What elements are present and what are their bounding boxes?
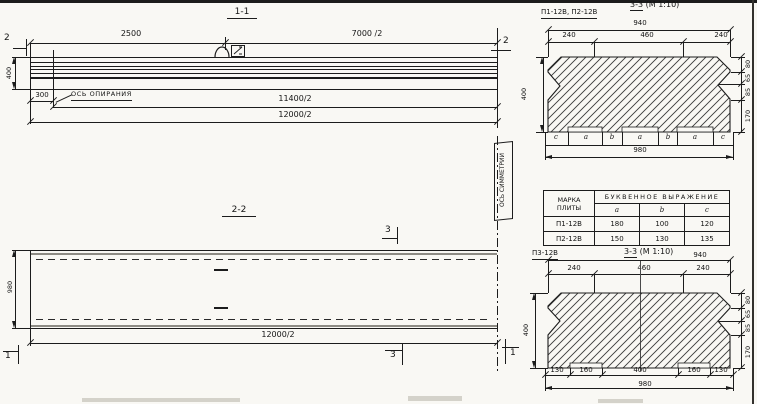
tick-mark bbox=[677, 132, 678, 145]
cell-mark: П1-12В bbox=[544, 217, 595, 232]
cut-mark-line bbox=[491, 50, 511, 51]
title-cut: 3-3 bbox=[630, 0, 643, 11]
extension-line bbox=[730, 30, 731, 57]
dim-line bbox=[30, 43, 497, 44]
bearing-axis-label: ОСЬ ОПИРАНИЯ bbox=[71, 90, 132, 101]
dim-line bbox=[15, 250, 16, 329]
symmetry-axis-label: ОСЬ СИММЕТРИИ bbox=[498, 138, 508, 222]
cut-mark-line bbox=[26, 39, 27, 56]
dim-line bbox=[741, 293, 742, 368]
dim-300: 300 bbox=[30, 91, 54, 100]
dim-85: 85 bbox=[743, 79, 753, 105]
dim-400: 400 bbox=[521, 317, 531, 343]
lifting-loop bbox=[211, 41, 247, 59]
tick-mark bbox=[733, 132, 734, 145]
dim-130: 130 bbox=[545, 366, 569, 375]
title-scale: (М 1:10) bbox=[646, 0, 680, 9]
cut-mark-2-left: 2 bbox=[4, 34, 10, 43]
scan-smudge bbox=[598, 399, 643, 403]
dim-400: 400 bbox=[4, 60, 14, 86]
slab-line bbox=[30, 69, 497, 70]
dim-2500: 2500 bbox=[111, 29, 151, 38]
arrow-up bbox=[540, 57, 544, 64]
dim-170: 170 bbox=[743, 339, 753, 365]
dim-400: 400 bbox=[519, 81, 529, 107]
cut-mark-1-right: 1 bbox=[510, 349, 516, 358]
letter-b: b bbox=[659, 133, 677, 142]
arrow-right bbox=[726, 386, 733, 390]
plan-edge bbox=[30, 253, 497, 255]
tick-mark bbox=[568, 132, 569, 145]
dim-460: 460 bbox=[624, 264, 664, 273]
arrow-left bbox=[545, 386, 552, 390]
section-3-3-title: 3-3 (М 1:10) bbox=[624, 247, 673, 256]
table-col-b: b bbox=[640, 204, 685, 217]
letter-a: a bbox=[631, 133, 649, 142]
cell-b: 130 bbox=[640, 232, 685, 246]
plan-edge bbox=[30, 250, 497, 251]
dim-line bbox=[545, 157, 733, 158]
dim-line bbox=[548, 260, 730, 261]
letter-c: c bbox=[714, 133, 732, 142]
dim-240: 240 bbox=[554, 264, 594, 273]
arrow-up bbox=[532, 293, 536, 300]
dim-line bbox=[741, 57, 742, 132]
extension-line bbox=[536, 132, 548, 133]
dim-7000-2: 7000 /2 bbox=[347, 29, 387, 38]
dim-11400-2: 11400/2 bbox=[273, 94, 317, 103]
leader-line bbox=[56, 94, 73, 103]
dim-240: 240 bbox=[683, 264, 723, 273]
cross-section-shape bbox=[540, 291, 740, 376]
slab-line bbox=[30, 77, 497, 79]
dim-line bbox=[548, 274, 730, 275]
dim-line bbox=[548, 42, 730, 43]
cut-mark-2-right: 2 bbox=[503, 37, 509, 46]
dim-170: 170 bbox=[743, 103, 753, 129]
letter-c: c bbox=[547, 133, 565, 142]
table-header-mark: МАРКА ПЛИТЫ bbox=[544, 191, 595, 217]
cut-mark-line bbox=[18, 345, 19, 364]
cut-mark-line bbox=[402, 344, 403, 365]
slab-line bbox=[30, 62, 497, 63]
arrow-down bbox=[540, 125, 544, 132]
table-header-expression: БУКВЕННОЕ ВЫРАЖЕНИЕ bbox=[595, 191, 730, 204]
extension-line bbox=[733, 145, 734, 160]
extension-line bbox=[548, 30, 549, 57]
plan-edge bbox=[30, 328, 497, 329]
arrow-right bbox=[726, 155, 733, 159]
dim-240: 240 bbox=[549, 31, 589, 40]
tick-mark bbox=[622, 132, 623, 145]
table-col-c: c bbox=[685, 204, 730, 217]
cross-section-shape bbox=[540, 55, 740, 140]
cut-mark-3-top: 3 bbox=[385, 226, 391, 235]
hidden-line bbox=[36, 319, 491, 320]
scan-smudge bbox=[408, 396, 462, 401]
dim-980: 980 bbox=[622, 146, 658, 155]
section-2-2-title: 2-2 bbox=[222, 206, 256, 217]
slab-marks-label: П1-12В, П2-12В bbox=[541, 8, 597, 19]
drawing-sheet: 1-1 2500 7000 /2 400 bbox=[0, 0, 757, 404]
dim-line bbox=[545, 375, 733, 376]
center-dash bbox=[214, 307, 228, 309]
arrow-left bbox=[545, 155, 552, 159]
cell-mark: П2-12В bbox=[544, 232, 595, 246]
dim-460: 460 bbox=[627, 31, 667, 40]
dim-line bbox=[30, 343, 497, 344]
dim-980: 980 bbox=[633, 380, 657, 389]
letter-b: b bbox=[603, 133, 621, 142]
cut-mark-1-left: 1 bbox=[5, 352, 11, 361]
extension-line bbox=[733, 375, 734, 391]
arrow-down bbox=[12, 321, 16, 328]
slab-dimensions-table: МАРКА ПЛИТЫ БУКВЕННОЕ ВЫРАЖЕНИЕ a b c П1… bbox=[543, 190, 730, 246]
letter-a: a bbox=[577, 133, 595, 142]
cell-c: 120 bbox=[685, 217, 730, 232]
arrow-up bbox=[12, 250, 16, 257]
dim-12000-2: 12000/2 bbox=[273, 110, 317, 119]
cut-mark-line bbox=[385, 350, 402, 351]
dim-940: 940 bbox=[686, 251, 714, 260]
dim-130: 130 bbox=[709, 366, 733, 375]
dim-85: 85 bbox=[743, 315, 753, 341]
tick-mark bbox=[545, 132, 546, 145]
cut-mark-line bbox=[505, 339, 506, 364]
letter-a: a bbox=[686, 133, 704, 142]
hidden-line bbox=[36, 259, 491, 260]
center-dash bbox=[214, 269, 228, 271]
section-3-3-title: 3-3 (М 1:10) bbox=[630, 0, 679, 9]
cut-mark-3-bottom: 3 bbox=[390, 351, 396, 360]
extension-line bbox=[30, 43, 31, 124]
cell-b: 100 bbox=[640, 217, 685, 232]
dim-12000-2: 12000/2 bbox=[248, 330, 308, 339]
groove bbox=[568, 127, 602, 132]
groove bbox=[622, 127, 658, 132]
cell-c: 135 bbox=[685, 232, 730, 246]
cut-mark-line bbox=[382, 238, 397, 239]
dim-240: 240 bbox=[701, 31, 741, 40]
dim-line bbox=[543, 57, 544, 132]
dim-line bbox=[535, 293, 536, 368]
extension-line bbox=[530, 368, 548, 369]
groove bbox=[677, 127, 713, 132]
cell-a: 180 bbox=[595, 217, 640, 232]
plan-edge bbox=[30, 325, 497, 327]
plan-edge bbox=[30, 250, 31, 329]
table-row: П2-12В 150 130 135 bbox=[544, 232, 730, 246]
slab-edge bbox=[30, 57, 497, 58]
table-col-a: a bbox=[595, 204, 640, 217]
arrow-down bbox=[532, 361, 536, 368]
dim-400: 400 bbox=[628, 366, 652, 375]
extension-line bbox=[730, 260, 731, 293]
dim-940: 940 bbox=[622, 19, 658, 28]
scan-smudge bbox=[82, 398, 240, 402]
slab-line bbox=[30, 73, 497, 74]
slab-line bbox=[30, 66, 497, 67]
title-cut: 3-3 bbox=[624, 247, 637, 258]
dim-line bbox=[30, 122, 497, 123]
table-row: П1-12В 180 100 120 bbox=[544, 217, 730, 232]
cut-mark-line bbox=[13, 48, 26, 49]
title-scale: (М 1:10) bbox=[640, 247, 674, 256]
dim-160: 160 bbox=[574, 366, 598, 375]
cell-a: 150 bbox=[595, 232, 640, 246]
section-1-1-title: 1-1 bbox=[227, 8, 257, 19]
cut-mark-line bbox=[397, 227, 398, 244]
slab-mark-label: П3-12В bbox=[532, 249, 558, 260]
dim-980: 980 bbox=[5, 274, 15, 300]
dim-line bbox=[53, 107, 497, 108]
extension-line bbox=[548, 260, 549, 293]
dim-160: 160 bbox=[682, 366, 706, 375]
